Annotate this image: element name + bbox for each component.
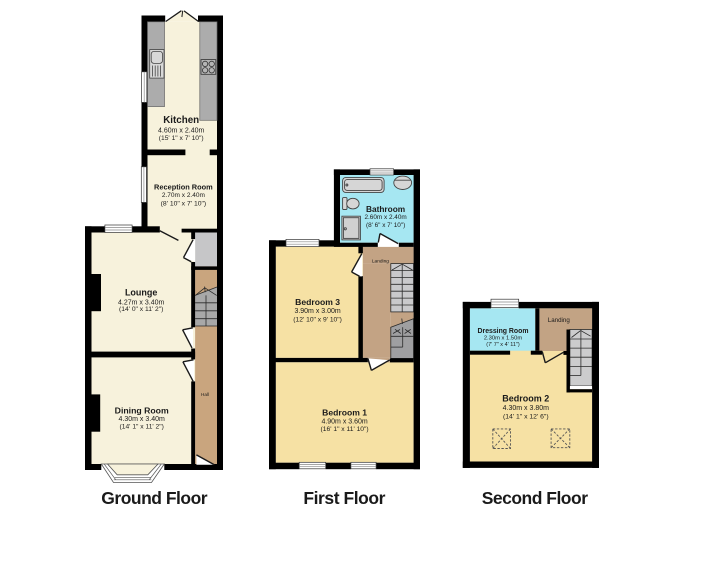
svg-text:Landing: Landing <box>372 258 389 264</box>
svg-text:4.30m x 3.80m: 4.30m x 3.80m <box>503 405 549 412</box>
svg-text:Bedroom 2: Bedroom 2 <box>502 394 549 404</box>
svg-text:Kitchen: Kitchen <box>163 115 199 126</box>
svg-text:(12' 10" x 9' 10"): (12' 10" x 9' 10") <box>293 317 342 324</box>
svg-text:Second Floor: Second Floor <box>482 488 589 508</box>
svg-text:Dining Room: Dining Room <box>115 405 169 415</box>
svg-text:3.90m x 3.00m: 3.90m x 3.00m <box>294 308 340 315</box>
svg-text:Lounge: Lounge <box>125 288 158 298</box>
svg-text:2.60m x 2.40m: 2.60m x 2.40m <box>364 214 406 221</box>
svg-text:(8' 10" x 7' 10"): (8' 10" x 7' 10") <box>161 200 207 207</box>
svg-text:(16' 1" x 11' 10"): (16' 1" x 11' 10") <box>321 426 369 433</box>
svg-text:4.90m x 3.60m: 4.90m x 3.60m <box>321 418 367 425</box>
svg-text:Ground Floor: Ground Floor <box>101 488 207 508</box>
svg-text:Bedroom 1: Bedroom 1 <box>322 408 367 418</box>
svg-text:Dressing Room: Dressing Room <box>478 328 529 335</box>
svg-text:(14' 1" x 11' 2"): (14' 1" x 11' 2") <box>120 424 164 431</box>
svg-text:(15' 1" x 7' 10"): (15' 1" x 7' 10") <box>159 135 204 142</box>
svg-text:Hall: Hall <box>201 392 209 397</box>
svg-text:Reception Room: Reception Room <box>154 182 213 191</box>
svg-text:Landing: Landing <box>548 317 571 324</box>
svg-text:(14' 0" x 11' 2"): (14' 0" x 11' 2") <box>119 306 163 313</box>
svg-text:4.30m x 3.40m: 4.30m x 3.40m <box>119 416 165 423</box>
svg-text:(14' 1" x 12' 6"): (14' 1" x 12' 6") <box>503 413 549 420</box>
svg-text:2.70m x 2.40m: 2.70m x 2.40m <box>162 192 205 199</box>
svg-text:Bedroom 3: Bedroom 3 <box>295 297 340 307</box>
svg-text:First Floor: First Floor <box>303 488 385 508</box>
svg-text:(8' 6" x 7' 10"): (8' 6" x 7' 10") <box>366 222 405 229</box>
svg-text:(7' 7" x 4' 11"): (7' 7" x 4' 11") <box>486 342 520 348</box>
svg-text:2.30m x 1.50m: 2.30m x 1.50m <box>484 336 523 342</box>
svg-text:Bathroom: Bathroom <box>366 204 405 214</box>
svg-text:4.60m x 2.40m: 4.60m x 2.40m <box>158 127 204 134</box>
